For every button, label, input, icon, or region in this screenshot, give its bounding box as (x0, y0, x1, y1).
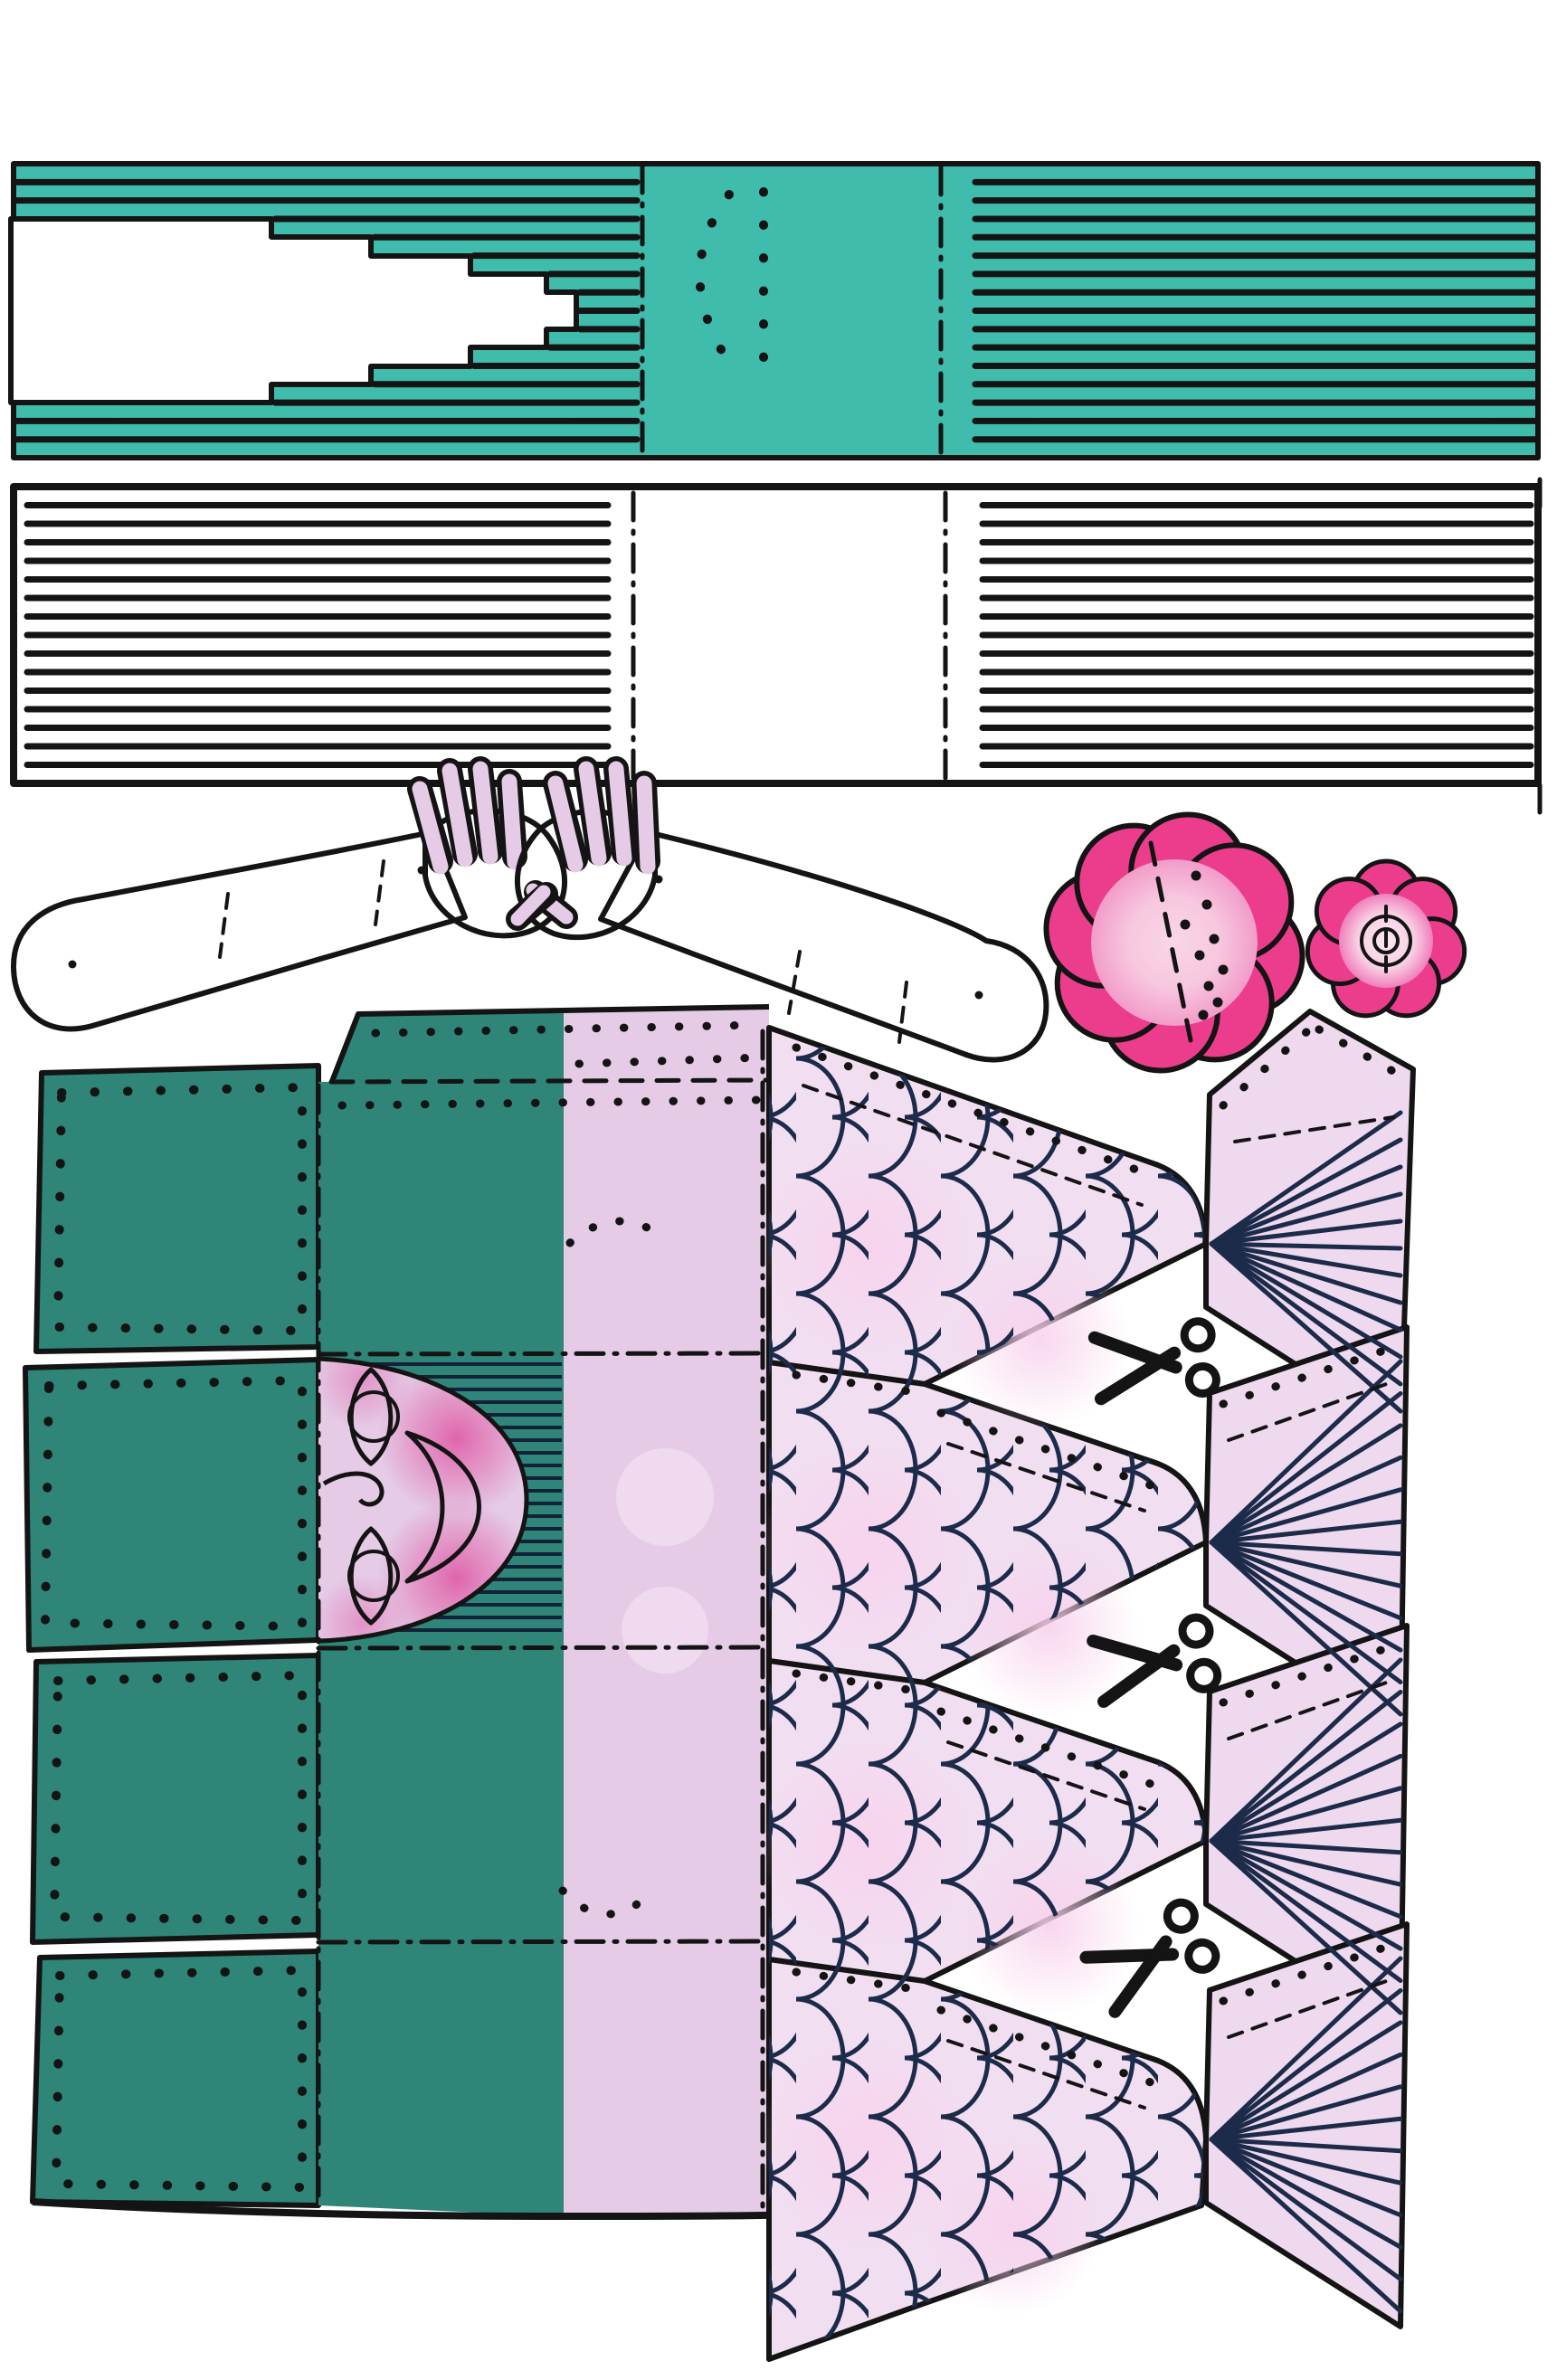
guide-mark (318, 1353, 767, 1354)
stitch-dot (1219, 965, 1229, 975)
stitch-dot (1210, 934, 1220, 944)
finger-fill (480, 769, 490, 857)
body-wrap (25, 1007, 1413, 2359)
guide-mark (375, 861, 384, 925)
stitch-dot (1204, 981, 1214, 991)
stitch-dot (1202, 900, 1212, 910)
scale-pattern (769, 1362, 1206, 1683)
left-arm (14, 769, 566, 1029)
guide-mark (789, 952, 800, 1013)
craft-sheet-page (0, 0, 1557, 2380)
mark-dot (418, 867, 426, 875)
top-tab (331, 1007, 769, 1084)
glue-flap-1 (36, 1066, 318, 1351)
finger-fill (509, 782, 515, 862)
right-hand (517, 769, 655, 937)
mark-dot (655, 876, 663, 884)
stitch-dot (1213, 998, 1223, 1008)
glue-flaps (25, 1066, 318, 2205)
body-highlight-2 (622, 1587, 708, 1674)
scale-pattern (769, 1661, 1206, 1981)
top-tab-teal (331, 1010, 564, 1084)
large-flower-center (1091, 859, 1258, 1026)
glue-flap-4 (33, 1951, 318, 2205)
mark-dot (975, 991, 983, 1000)
stitch-dot (1181, 920, 1191, 930)
guide-mark (318, 1647, 767, 1648)
finger-fill (616, 769, 624, 858)
left-arm-outline (14, 832, 465, 1029)
body-highlight-1 (616, 1448, 714, 1546)
glue-flap-3 (33, 1655, 318, 1942)
finger-fill (644, 783, 648, 867)
tail-segments (760, 1028, 1206, 2359)
stitch-dot (1195, 951, 1205, 961)
guide-mark (220, 894, 228, 957)
craft-sheet-drawing (0, 0, 1557, 2380)
guide-mark (318, 1941, 767, 1942)
large-flower (1046, 814, 1302, 1070)
stitch-dot (1199, 1010, 1209, 1020)
hair-strip-band-2 (14, 487, 1538, 783)
glue-flap-2 (25, 1360, 318, 1650)
hair-strip-band-1 (11, 164, 1538, 458)
top-tab-lavender (564, 1007, 769, 1083)
mark-dot (69, 961, 77, 969)
stitch-dot (1191, 871, 1201, 881)
tail-fins (1206, 1011, 1413, 2327)
band2-stripes (27, 506, 1531, 765)
